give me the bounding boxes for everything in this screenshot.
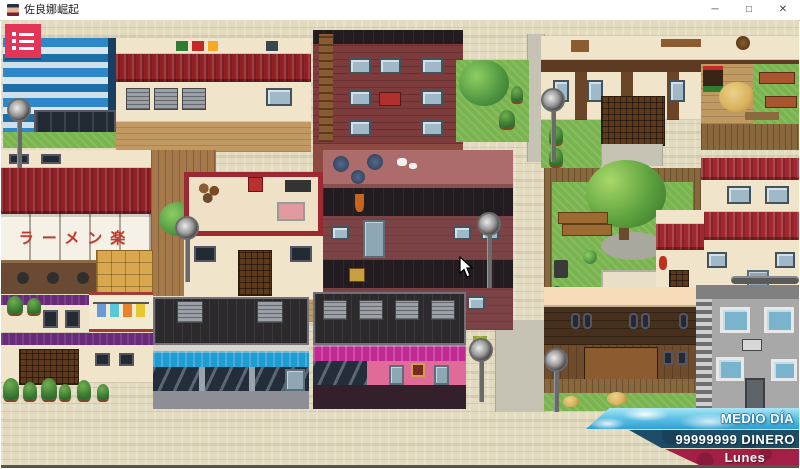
potted-plant bbox=[41, 378, 57, 400]
window-controls: ─ □ ✕ bbox=[698, 0, 800, 20]
ac-unit bbox=[177, 301, 203, 323]
street-lamp bbox=[469, 338, 493, 362]
slit-window bbox=[641, 313, 650, 329]
slit-window bbox=[629, 313, 638, 329]
balcony-plant bbox=[27, 298, 41, 314]
stove-unit bbox=[126, 88, 150, 110]
street-lamp-pole bbox=[17, 116, 22, 168]
low-fence bbox=[544, 379, 701, 393]
stove-unit bbox=[154, 88, 178, 110]
goods-shelf bbox=[703, 66, 723, 92]
street-lamp bbox=[7, 98, 31, 122]
fire-escape-ladder bbox=[319, 34, 333, 142]
window bbox=[707, 252, 727, 268]
mouse-cursor-icon bbox=[459, 256, 475, 280]
bench bbox=[759, 72, 795, 84]
potted-plant bbox=[511, 86, 523, 102]
window bbox=[95, 353, 110, 366]
shop-sign bbox=[411, 363, 425, 377]
rooftop-pot bbox=[736, 36, 750, 50]
title-bar[interactable]: 佐良娜崛起 ─ □ ✕ bbox=[0, 0, 800, 21]
shop-roof bbox=[116, 54, 311, 82]
stool bbox=[17, 272, 29, 284]
shrub bbox=[583, 250, 597, 264]
rooftop-bench bbox=[661, 39, 701, 47]
grill bbox=[285, 180, 311, 192]
slit-window bbox=[679, 313, 688, 329]
potted-plant bbox=[77, 380, 91, 400]
red-awning-box bbox=[379, 92, 401, 106]
shop-sign bbox=[176, 41, 188, 51]
lattice-door bbox=[238, 250, 272, 296]
window bbox=[331, 226, 349, 240]
white-sack bbox=[397, 158, 407, 166]
window bbox=[266, 88, 292, 106]
window bbox=[349, 120, 371, 136]
shop-sign bbox=[266, 41, 278, 51]
laundry-shirt bbox=[110, 304, 119, 317]
wooden-wall bbox=[544, 307, 701, 345]
ac-unit bbox=[257, 301, 283, 323]
shop-sign bbox=[208, 41, 218, 51]
shop-door bbox=[285, 369, 305, 391]
round-table bbox=[351, 170, 365, 184]
shop-sign bbox=[192, 41, 204, 51]
potted-plant bbox=[499, 110, 515, 128]
game-viewport[interactable]: ラーメン楽 bbox=[1, 20, 799, 468]
street-lamp bbox=[175, 216, 199, 240]
window bbox=[765, 186, 789, 204]
slit-window bbox=[583, 313, 592, 329]
hay-bale bbox=[563, 396, 579, 407]
potted-plant bbox=[23, 382, 37, 400]
peach-roof bbox=[544, 287, 701, 307]
balcony-plant bbox=[7, 296, 23, 314]
round-table bbox=[333, 156, 349, 172]
window bbox=[421, 58, 443, 74]
terrace-table bbox=[277, 202, 305, 221]
lattice-gate bbox=[584, 347, 658, 381]
street-lamp bbox=[477, 212, 501, 236]
cyan-awning bbox=[153, 351, 309, 367]
window bbox=[663, 351, 673, 365]
window bbox=[771, 359, 797, 381]
shop-deck bbox=[116, 122, 311, 152]
window bbox=[349, 90, 371, 106]
magenta-awning bbox=[313, 345, 466, 361]
weekday-label: Lunes bbox=[725, 450, 766, 465]
weekday-banner: Lunes bbox=[665, 449, 799, 466]
rooftop-item bbox=[571, 40, 589, 52]
stool bbox=[47, 272, 59, 284]
potted-plant bbox=[97, 384, 109, 400]
window bbox=[764, 307, 794, 333]
window-title: 佐良娜崛起 bbox=[24, 0, 79, 20]
shop-door bbox=[434, 365, 449, 385]
ac-unit bbox=[742, 339, 762, 351]
time-of-day-banner: MEDIO DÍA bbox=[586, 408, 799, 429]
door bbox=[363, 220, 385, 258]
window bbox=[43, 310, 58, 328]
window-box bbox=[41, 154, 61, 164]
window bbox=[65, 310, 80, 328]
ac-unit bbox=[395, 300, 419, 320]
menu-button[interactable] bbox=[5, 24, 41, 58]
apartment-parapet bbox=[313, 30, 463, 44]
window bbox=[379, 58, 401, 74]
street-lamp-pole bbox=[551, 106, 556, 162]
glass-storefront bbox=[313, 361, 367, 385]
laundry-shirt bbox=[136, 304, 145, 317]
money-banner: 99999999 DINERO bbox=[629, 430, 799, 448]
window bbox=[775, 252, 795, 268]
street-lamp bbox=[544, 348, 568, 372]
app-icon bbox=[7, 4, 19, 16]
window bbox=[421, 90, 443, 106]
bench bbox=[558, 212, 608, 224]
window-bottom-edge bbox=[1, 465, 799, 468]
maximize-button[interactable]: □ bbox=[732, 0, 766, 20]
laundry-shirt bbox=[123, 304, 132, 317]
stool bbox=[77, 272, 89, 284]
small-sign bbox=[349, 268, 365, 282]
window bbox=[669, 80, 685, 102]
barrel-cluster bbox=[196, 180, 222, 204]
laundry-shirt bbox=[97, 304, 106, 317]
wing-roof bbox=[656, 224, 704, 250]
street-lamp-pole bbox=[479, 356, 484, 402]
slit-window bbox=[571, 313, 580, 329]
wooden-fence bbox=[701, 124, 799, 150]
bench bbox=[765, 96, 797, 108]
window bbox=[194, 246, 216, 262]
tree bbox=[459, 60, 509, 106]
cafe-roof-terrace bbox=[323, 150, 513, 188]
house-roof-ridge bbox=[701, 158, 799, 180]
wing-roof-top bbox=[656, 210, 704, 224]
hay-bale bbox=[607, 392, 627, 405]
bench bbox=[562, 224, 612, 236]
lattice-entry bbox=[601, 96, 665, 146]
pillar bbox=[199, 367, 205, 391]
shop-base bbox=[313, 385, 466, 409]
trash-bin bbox=[554, 260, 568, 278]
window bbox=[290, 246, 312, 262]
red-chair bbox=[248, 177, 263, 192]
ramen-sign-text: ラーメン楽 bbox=[19, 227, 133, 248]
low-table bbox=[745, 112, 779, 120]
shop-door bbox=[389, 365, 404, 385]
window bbox=[349, 58, 371, 74]
window bbox=[453, 226, 471, 240]
roof-pipe bbox=[731, 276, 799, 284]
list-menu-icon bbox=[12, 32, 41, 50]
shop-base bbox=[153, 391, 309, 409]
street-lamp bbox=[541, 88, 565, 112]
potted-plant bbox=[3, 378, 19, 400]
window bbox=[727, 186, 751, 204]
stairwell-strip bbox=[696, 299, 712, 418]
white-sack bbox=[409, 163, 417, 169]
stone-path bbox=[495, 320, 545, 412]
pillar bbox=[249, 367, 255, 391]
ramen-roof bbox=[1, 168, 151, 214]
window bbox=[720, 307, 750, 333]
orange-banner bbox=[355, 194, 364, 212]
window bbox=[716, 357, 744, 381]
hay-mound bbox=[719, 82, 755, 112]
house-roof-lower bbox=[701, 212, 799, 240]
red-lantern bbox=[659, 256, 667, 270]
ac-unit bbox=[431, 300, 455, 320]
street-lamp-pole bbox=[185, 234, 190, 282]
close-button[interactable]: ✕ bbox=[766, 0, 800, 20]
round-table bbox=[367, 154, 383, 170]
street-lamp-pole bbox=[554, 366, 559, 412]
money-label: 99999999 DINERO bbox=[675, 432, 795, 447]
ac-unit bbox=[323, 300, 347, 320]
ac-unit bbox=[359, 300, 383, 320]
time-of-day-label: MEDIO DÍA bbox=[721, 411, 794, 426]
window bbox=[677, 351, 687, 365]
potted-plant bbox=[59, 384, 71, 400]
window bbox=[421, 120, 443, 136]
street-lamp-pole bbox=[487, 230, 492, 288]
stove-unit bbox=[182, 88, 206, 110]
minimize-button[interactable]: ─ bbox=[698, 0, 732, 20]
purple-roof-band bbox=[1, 333, 153, 345]
window bbox=[119, 353, 134, 366]
window bbox=[467, 296, 485, 310]
